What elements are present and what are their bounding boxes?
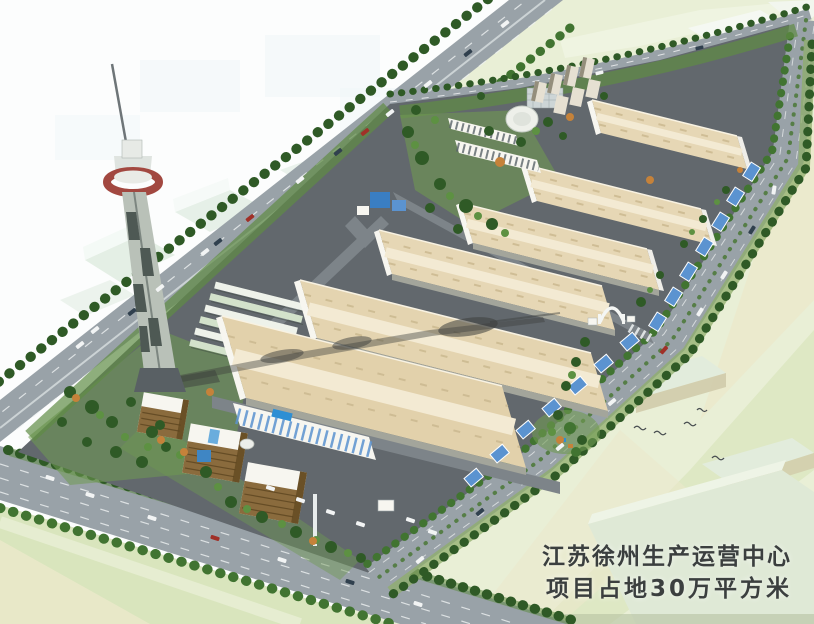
office-block (239, 462, 307, 524)
caption-line-2: 项目占地30万平方米 (542, 573, 792, 605)
office-block (137, 392, 189, 439)
round-building-core (513, 112, 531, 126)
aerial-rendering: 江苏徐州生产运营中心 项目占地30万平方米 (0, 0, 814, 624)
blue-glass-cube (197, 450, 211, 462)
caption-line-1: 江苏徐州生产运营中心 (542, 541, 792, 573)
tower-base (134, 368, 186, 392)
billboard (378, 500, 394, 511)
scene (0, 0, 814, 624)
project-caption: 江苏徐州生产运营中心 项目占地30万平方米 (542, 541, 792, 605)
office-block (182, 423, 248, 482)
dome-structure (240, 439, 254, 449)
